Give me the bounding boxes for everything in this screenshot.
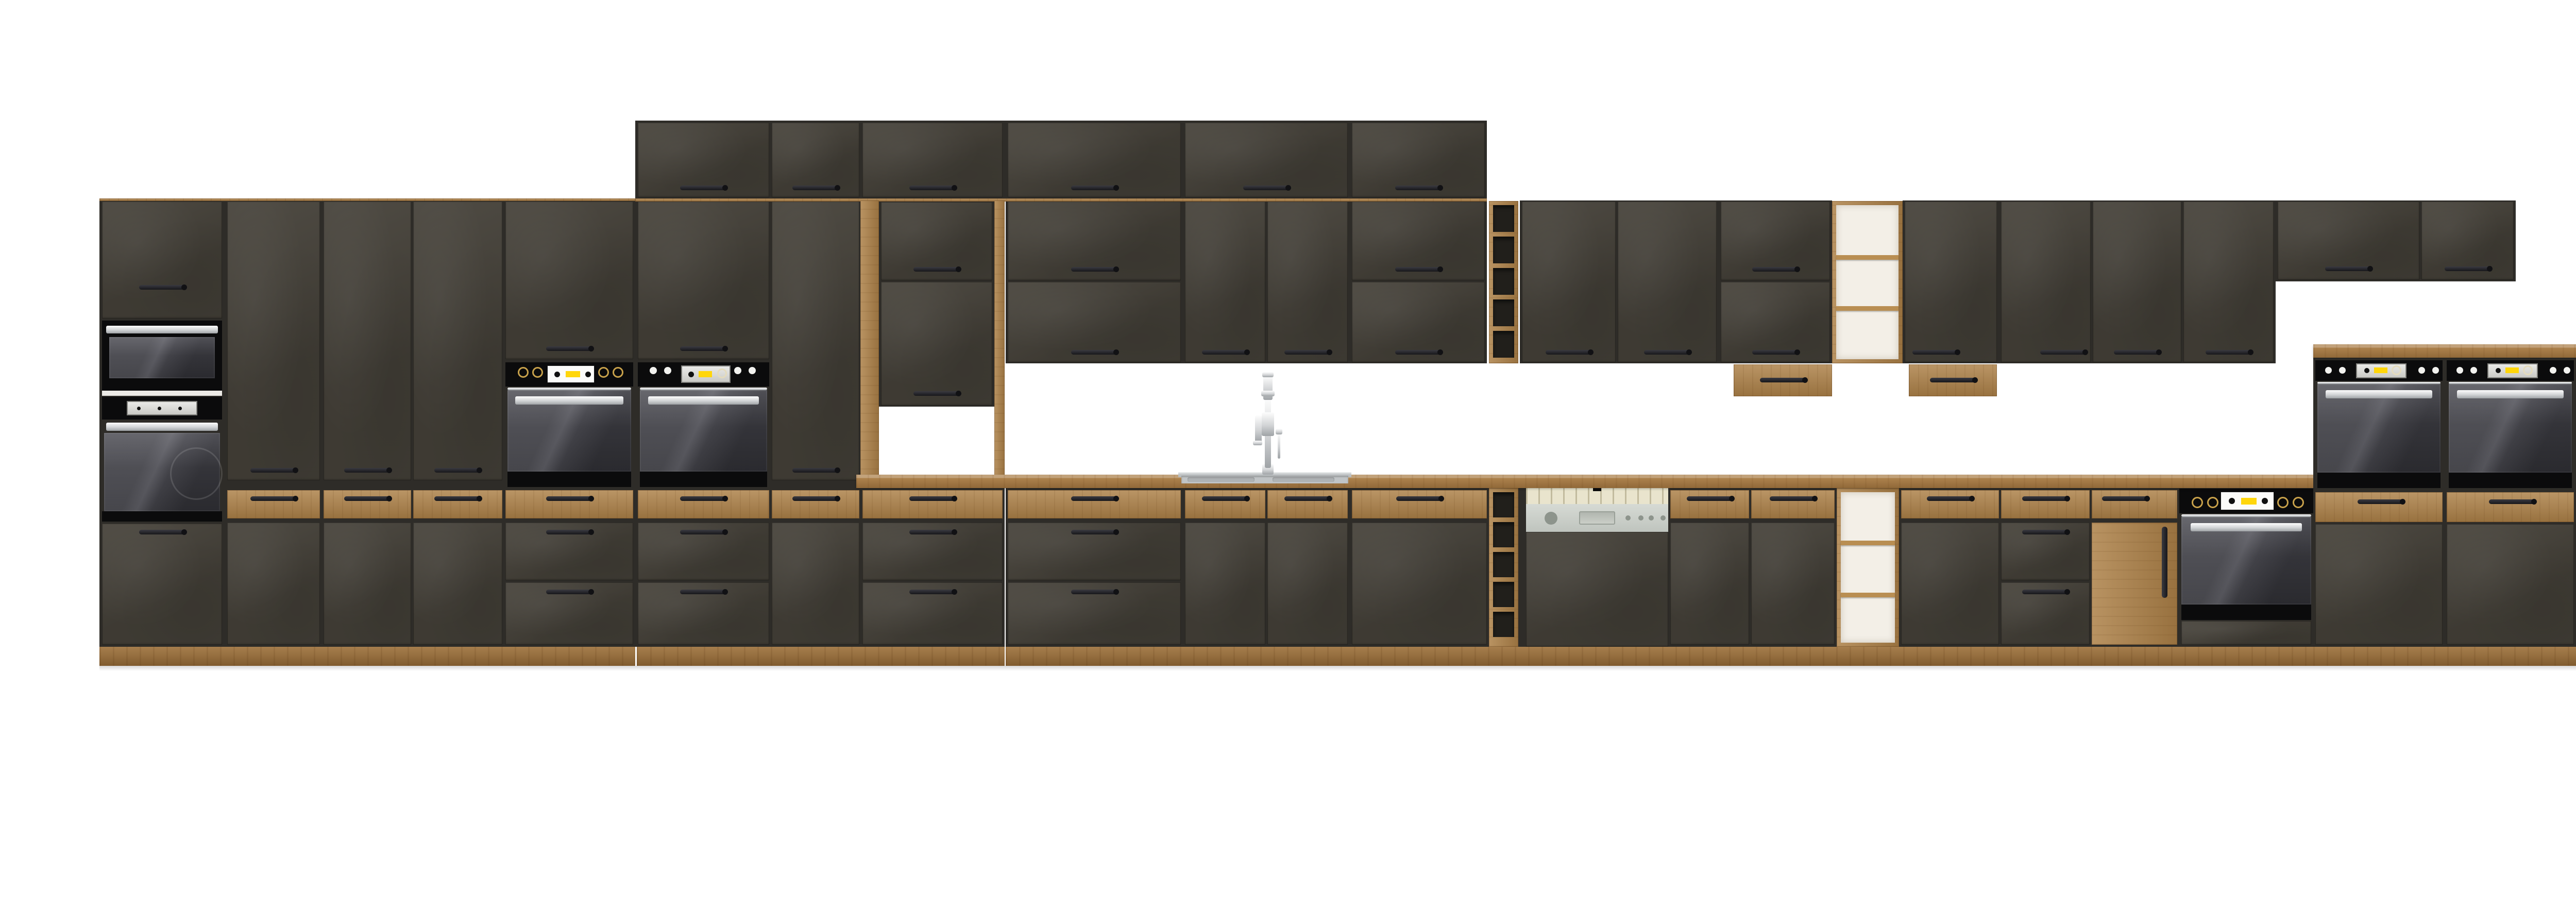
knob-dot-white [650,367,657,374]
handle-bar [546,590,592,594]
wine-rack-cubby [1493,268,1514,295]
base-drawer-unit-oak-drawer [2001,490,2090,518]
oven-tower-e-door [638,202,769,359]
handle-bar [792,186,839,190]
oven-separator-strip [102,391,222,396]
handle-bar [546,346,592,351]
handle-bar [2206,350,2252,355]
wine-rack-cubby [1493,299,1514,326]
wall-cabinet-m-door [1618,202,1717,362]
handle-bar [2040,350,2087,355]
faucet-spout-tip [1253,441,1262,445]
handle-bar [680,186,726,190]
knob-dot-white [2470,367,2477,374]
knob-ring-gold [598,367,609,378]
base-k-door [1352,523,1487,645]
handle-bar [1930,378,1976,382]
handle-bar [909,590,956,594]
oven-t2-bottom-strip [2449,473,2572,488]
wall-cabinet-r-door [2183,202,2274,362]
open-shelf-wall-shelf [1836,306,1899,311]
handle-bar [1071,590,1117,594]
wine-rack-cubby [1493,331,1514,358]
handle-bar [909,496,956,501]
base-u2-oak-drawer [1751,490,1835,518]
pantry-b-bottom-door [227,523,320,645]
pantry-c-door-left [324,202,411,480]
knob-dot-white [664,367,671,374]
faucet-lever [1278,433,1280,459]
handle-bar [2022,530,2069,534]
oak-top-edge-left-block [99,198,635,201]
knob-ring-gold [2293,497,2304,508]
handle-bar [2022,496,2069,501]
handle-bar [1395,267,1442,272]
built-under-oven-bottom-strip [2181,605,2311,620]
wall-cabinet-q-door [2093,202,2181,362]
display-dot [688,372,694,377]
handle-bar [680,346,726,351]
pantry-c-door-right [413,202,502,480]
dishwasher-button [1649,515,1654,521]
plinth-right-block [2313,647,2576,666]
pantry-f-bottom-door [772,523,859,645]
faucet-top-knob [1262,372,1274,377]
faucet-spout [1255,415,1262,442]
handle-bar [1760,378,1806,382]
handle-bar [2445,266,2491,271]
niche-base-oak-drawer [862,490,1003,518]
dishwasher-tub-mark [1593,488,1601,491]
oven-a-handle-chrome [106,423,218,431]
niche-flap-bottom [881,282,992,406]
handle-bar [1243,186,1290,190]
handle-bar [680,496,726,501]
oven-tower-e-oak-drawer [638,490,769,518]
oak-base-unit-drawer [2092,490,2177,518]
oven-e-handle-chrome [648,396,759,405]
wall-cabinet-i-door-left [1185,202,1265,362]
handle-bar [1395,350,1442,355]
knob-ring-gold [532,367,543,378]
knob-ring-gold [2192,497,2203,508]
knob-dot-white [2418,367,2425,374]
oven-a-display-dot [178,407,182,410]
open-shelf-base-shelf [1841,541,1895,545]
handle-bar [250,496,297,501]
display-dot [2229,498,2235,504]
countertop [856,475,2313,488]
handle-bar [344,468,391,473]
handle-bar [1546,350,1592,355]
handle-bar [1396,496,1443,501]
knob-dot-white [2550,367,2556,374]
knob-dot-white [749,367,756,374]
oven-tower-d-oak-drawer [505,490,633,518]
dishwasher-button [1638,515,1643,521]
handle-bar [909,186,956,190]
display-dot [554,372,560,377]
pantry-f-oak-drawer [772,490,859,518]
built-under-oven-drawer [2181,621,2311,645]
wall-cabinet-o-door [1905,202,1997,362]
pantry-c-oak-drawer-left [324,490,411,518]
oven-t1-handle-chrome [2326,390,2432,398]
open-shelf-base-shelf [1841,593,1895,597]
dishwasher-button [1625,515,1631,521]
knob-ring-pale [717,368,727,378]
handle-bar [680,590,726,594]
display-dot [2364,368,2369,373]
oven-a-display-dot [137,407,141,410]
handle-bar [1284,350,1331,355]
oven-tower-t2-oak-drawer [2447,492,2574,522]
handle-bar [2102,496,2148,501]
base-h-oak-drawer [1008,490,1181,518]
kitchen-product-render: { "scene": { "width": 5400, "height": 17… [0,0,2576,922]
base-u1-oak-drawer [1670,490,1749,518]
sink-base-door-left [1185,523,1265,645]
handle-bar [1071,267,1117,272]
oven-d-bottom-strip [507,472,631,487]
oven-a-bottom-strip [102,511,222,522]
wine-rack-cubby [1493,612,1514,637]
handle-bar [434,468,481,473]
pantry-c-bottom-door-right [413,523,502,645]
knob-dot-white [2432,367,2439,374]
oven-a-fan-ring [170,447,223,500]
dishwasher-button [1660,515,1666,521]
base-u3-oak-drawer [1901,490,1999,518]
niche-oak-post-right [994,200,1005,488]
sink-base-door-right [1267,523,1348,645]
floor-shadow [99,666,2576,671]
pantry-f-door [772,202,859,480]
handle-bar [1071,530,1117,534]
oven-tower-t1-bottom [2315,524,2443,645]
faucet-body [1262,412,1274,436]
faucet-lever-knob [1276,429,1282,434]
base-k-oak-drawer [1352,490,1487,518]
oven-a-display-dot [158,407,161,410]
handle-bar [434,496,481,501]
wall-cabinet-l-door [1522,202,1616,362]
display-yellow [2241,498,2257,505]
handle-bar [250,468,297,473]
display-yellow [2374,367,2387,373]
wine-rack-cubby [1493,492,1514,517]
pantry-c-oak-drawer-right [413,490,502,518]
microwave-handle-chrome [106,326,218,333]
wine-rack-cubby [1493,522,1514,547]
handle-bar [2022,590,2069,594]
right-block-oak-top [2313,344,2576,358]
handle-bar [139,285,185,290]
oven-tower-t1-oak-drawer [2315,492,2443,522]
wine-rack-cubby [1493,552,1514,577]
faucet-spring-coil [1263,376,1273,400]
handle-bar [909,530,956,534]
tall-oven-unit-bottom-drawer [102,524,222,645]
dishwasher-handle-recess [1579,511,1615,525]
handle-bar [139,530,185,534]
wall-cabinet-i-door-right [1267,202,1348,362]
oven-e-bottom-strip [640,472,767,487]
base-u2-door [1751,523,1835,645]
oven-d-handle-chrome [515,396,623,405]
handle-bar [1202,350,1248,355]
pantry-b-door [227,202,320,480]
knob-ring-pale [2392,365,2401,375]
oven-t1-bottom-strip [2317,473,2441,488]
handle-bar [1395,186,1442,190]
open-shelf-wall-back [1836,205,1899,359]
dishwasher-front [1526,532,1668,647]
handle-bar [2489,499,2535,504]
tall-oven-unit-top-door [102,202,222,318]
display-yellow [566,371,580,377]
handle-bar [2325,266,2371,271]
oven-tower-d-top-door [505,202,633,359]
handle-bar [2114,350,2160,355]
knob-ring-gold [613,367,623,378]
knob-ring-pale [2523,365,2533,375]
sink-base-oak-drawer-right [1267,490,1348,518]
display-dot [2262,498,2268,504]
handle-bar [1071,186,1117,190]
knob-dot-white [2564,367,2570,374]
handle-bar [1927,496,1973,501]
knob-dot-white [2325,367,2332,374]
sink-bowl-right [1273,477,1334,482]
oven-tower-t2-bottom [2447,524,2574,645]
base-u1-door [1670,523,1749,645]
handle-bar [913,391,960,396]
handle-bar [1202,496,1248,501]
handle-bar [1284,496,1331,501]
handle-bar [546,530,592,534]
display-yellow [699,371,712,377]
knob-ring-gold [518,367,529,378]
handle-bar [792,468,839,473]
handle-bar [792,496,839,501]
handle-vertical [2162,527,2167,598]
knob-dot-white [2339,367,2346,374]
faucet-nut [1261,391,1275,396]
wine-rack-cubby [1493,205,1514,232]
sink-base-oak-drawer-left [1185,490,1265,518]
built-under-oven-handle-chrome [2191,523,2302,531]
handle-bar [680,530,726,534]
pantry-b-oak-drawer [227,490,320,518]
knob-dot-white [2456,367,2463,374]
sink-bowl-left [1188,477,1255,482]
handle-bar [1071,496,1117,501]
display-yellow [2505,367,2519,373]
dishwasher-knob-ring [1545,512,1557,525]
open-shelf-base-back [1841,492,1895,643]
wall-cabinet-p-door [2001,202,2091,362]
handle-bar [1752,350,1799,355]
plinth-left-block [99,647,635,666]
microwave-glass [109,337,215,378]
plinth-mid-tall [637,647,1005,666]
wine-rack-cubby [1493,582,1514,607]
handle-bar [913,267,960,272]
display-dot [585,372,591,377]
handle-bar [1687,496,1733,501]
plinth-base-run [1006,647,2313,666]
handle-bar [1644,350,1690,355]
handle-bar [2358,499,2404,504]
wine-rack-cubby [1493,237,1514,263]
handle-bar [1071,350,1117,355]
knob-ring-gold [2207,497,2218,508]
pantry-c-bottom-door-left [324,523,411,645]
knob-ring-gold [2277,497,2289,508]
knob-dot-white [734,367,741,374]
display-dot [2496,368,2501,373]
open-shelf-wall-shelf [1836,255,1899,260]
handle-bar [546,496,592,501]
handle-bar [344,496,391,501]
niche-oak-post-left [860,200,879,488]
oven-t2-handle-chrome [2457,390,2564,398]
handle-bar [1752,267,1799,272]
handle-bar [1912,350,1959,355]
kitchen-render-stage [0,0,2576,922]
base-u3-door [1901,523,1999,645]
handle-bar [1770,496,1816,501]
